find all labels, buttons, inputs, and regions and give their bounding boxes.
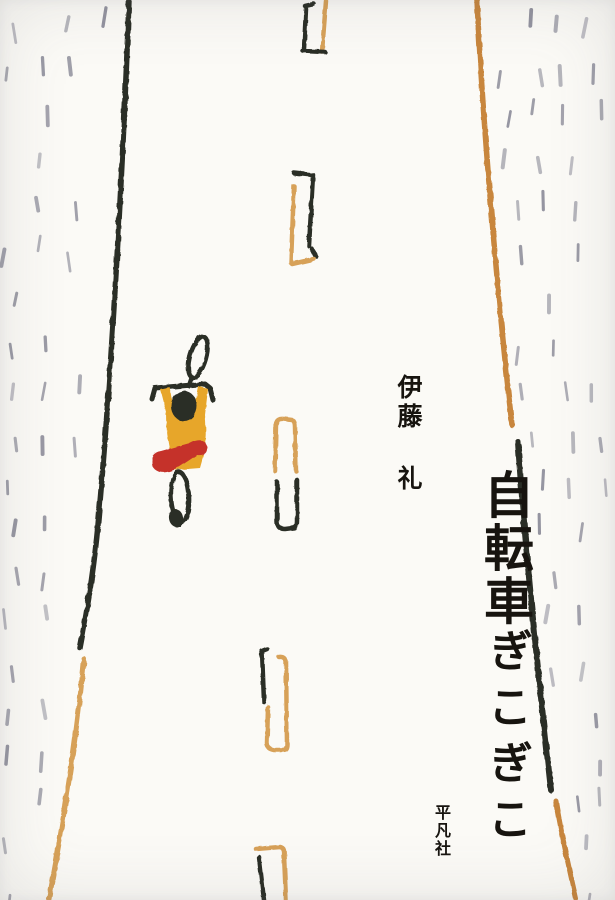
- book-title: 自転車ぎこぎこ: [424, 221, 586, 852]
- rain-tick: [1, 249, 4, 266]
- rain-tick: [16, 568, 19, 584]
- lane-dash-3-orange: [275, 419, 296, 471]
- rain-tick: [11, 667, 13, 682]
- rain-tick: [530, 10, 531, 26]
- rain-tick: [13, 520, 15, 535]
- rain-tick: [7, 710, 8, 724]
- cyclist-rear-wheel-foot: [168, 508, 185, 528]
- rain-tick: [588, 894, 590, 900]
- author-name: 伊藤 礼: [390, 374, 426, 494]
- cyclist-front-wheel: [185, 335, 212, 380]
- rain-tick: [6, 68, 7, 80]
- rain-tick: [45, 606, 47, 618]
- rain-tick: [599, 788, 600, 805]
- book-title-kana: ぎこぎこ: [480, 628, 531, 852]
- rain-tick: [596, 715, 597, 727]
- rain-tick: [583, 19, 587, 37]
- rain-tick: [47, 107, 48, 126]
- rain-tick: [67, 253, 70, 271]
- lane-dash-5: [256, 847, 286, 900]
- lane-dash-5-ink: [259, 857, 264, 900]
- rain-tick: [570, 158, 572, 174]
- rain-tick: [556, 17, 557, 31]
- rain-tick: [75, 203, 76, 220]
- rain-tick: [42, 58, 43, 75]
- lane-dash-1: [303, 1, 326, 52]
- book-title-kanji: 自転車: [476, 469, 535, 628]
- rain-tick: [508, 111, 511, 126]
- rain-tick: [38, 236, 40, 251]
- rain-tick: [498, 71, 500, 87]
- rain-tick: [74, 438, 75, 456]
- road-edge-left-orange: [49, 659, 84, 899]
- rain-tick: [518, 202, 519, 220]
- rain-tick: [9, 895, 10, 900]
- publisher-name: 平凡社: [429, 804, 453, 858]
- lane-dashes: [256, 1, 326, 900]
- lane-dash-2-ink: [294, 173, 316, 257]
- cyclist-head: [171, 391, 197, 421]
- rain-tick: [593, 65, 594, 84]
- rain-tick: [3, 610, 5, 629]
- rain-tick: [10, 344, 12, 358]
- rain-tick: [538, 158, 541, 173]
- book-cover: 自転車ぎこぎこ 伊藤 礼 平凡社: [0, 0, 615, 900]
- rain-tick: [45, 337, 46, 351]
- road-edge-left-black: [80, 0, 129, 648]
- lane-dash-4-ink: [262, 649, 267, 702]
- rain-tick: [12, 384, 14, 399]
- rain-tick: [42, 701, 45, 719]
- rain-tick: [605, 480, 606, 496]
- lane-dash-1-orange: [322, 1, 326, 52]
- rain-tick: [36, 198, 38, 211]
- rain-tick: [66, 17, 69, 31]
- rain-tick: [41, 753, 42, 771]
- rain-tick: [560, 66, 561, 85]
- rain-tick: [532, 100, 534, 114]
- rain-tick: [503, 150, 505, 167]
- lane-dash-3: [275, 419, 297, 529]
- lane-dash-2: [291, 173, 316, 264]
- rain-tick: [575, 203, 576, 220]
- rain-tick: [15, 438, 16, 451]
- rain-tick: [69, 58, 71, 75]
- rain-tick: [42, 383, 45, 400]
- rain-tick: [6, 746, 8, 764]
- rain-tick: [42, 574, 44, 590]
- rain-tick: [600, 439, 602, 452]
- rain-tick-field-left: [1, 8, 106, 900]
- rain-tick: [14, 293, 17, 305]
- rain-tick: [79, 376, 80, 392]
- rain-tick: [540, 70, 543, 86]
- rain-tick: [3, 839, 5, 853]
- lane-dash-4-orange: [267, 657, 287, 750]
- rain-tick: [103, 8, 106, 26]
- rain-tick: [13, 24, 16, 43]
- rain-tick: [586, 836, 587, 848]
- rain-tick: [39, 154, 40, 167]
- cyclist: [151, 335, 213, 528]
- rain-tick: [39, 790, 41, 804]
- lane-dash-4: [262, 649, 287, 750]
- lane-dash-3-ink: [277, 480, 297, 529]
